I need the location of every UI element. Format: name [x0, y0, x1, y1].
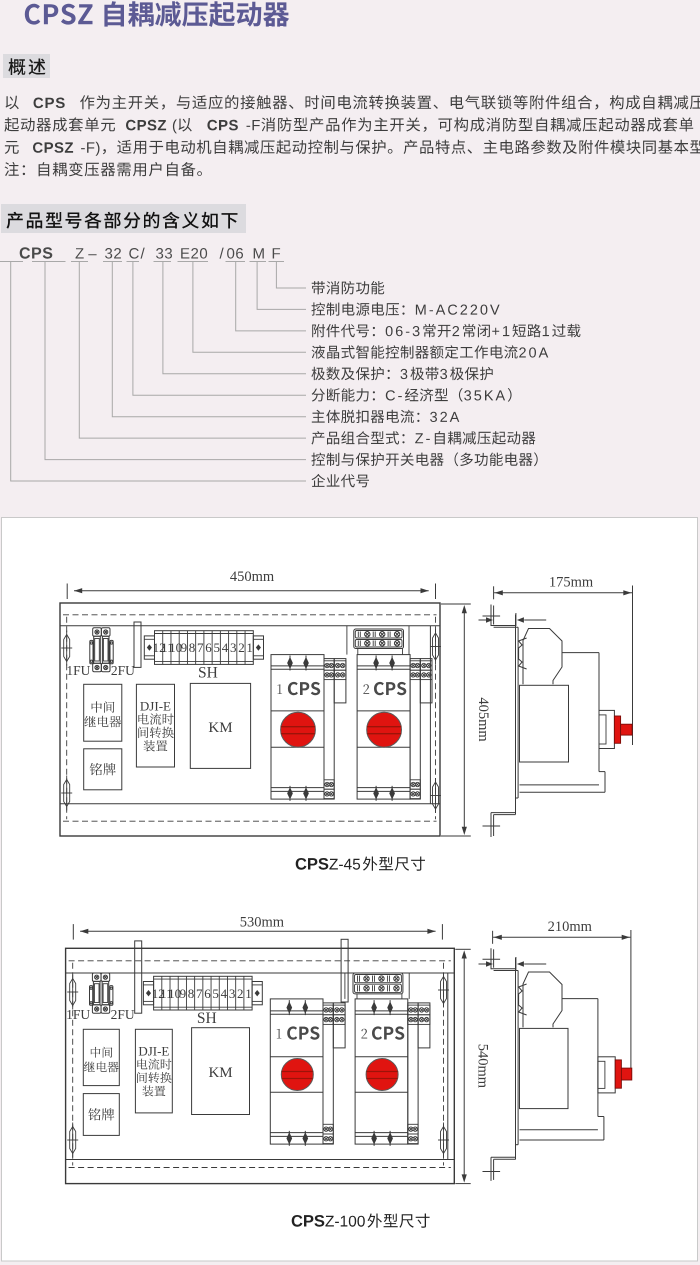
svg-text:2: 2	[237, 986, 244, 1001]
svg-text:2FU: 2FU	[111, 1007, 135, 1022]
svg-text:2FU: 2FU	[111, 663, 135, 678]
svg-text:8: 8	[188, 986, 195, 1001]
svg-text:530mm: 530mm	[240, 915, 285, 931]
svg-text:7: 7	[197, 640, 204, 655]
svg-text:SH: SH	[197, 1010, 217, 1027]
svg-text:4: 4	[222, 640, 229, 655]
svg-text:7: 7	[196, 986, 203, 1001]
svg-text:DJI-E: DJI-E	[138, 1043, 169, 1058]
svg-text:175mm: 175mm	[549, 574, 594, 590]
svg-text:1: 1	[246, 640, 253, 655]
svg-text:210mm: 210mm	[548, 919, 593, 935]
svg-text:1FU: 1FU	[66, 1007, 90, 1022]
svg-text:9: 9	[181, 640, 188, 655]
svg-text:3: 3	[230, 640, 237, 655]
svg-text:8: 8	[189, 640, 196, 655]
svg-text:1: 1	[245, 986, 252, 1001]
svg-text:1FU: 1FU	[66, 663, 90, 678]
svg-text:2: 2	[238, 640, 245, 655]
svg-text:DJI-E: DJI-E	[140, 698, 171, 713]
svg-text:6: 6	[204, 986, 211, 1001]
svg-text:5: 5	[212, 986, 219, 1001]
svg-text:5: 5	[214, 640, 221, 655]
svg-text:405mm: 405mm	[475, 697, 491, 742]
svg-text:540mm: 540mm	[475, 1044, 491, 1089]
svg-text:450mm: 450mm	[230, 569, 275, 585]
svg-text:4: 4	[221, 986, 228, 1001]
svg-text:6: 6	[205, 640, 212, 655]
svg-text:KM: KM	[208, 720, 232, 736]
svg-text:SH: SH	[198, 664, 218, 681]
svg-text:KM: KM	[208, 1065, 232, 1081]
svg-text:3: 3	[229, 986, 236, 1001]
svg-text:9: 9	[180, 986, 187, 1001]
